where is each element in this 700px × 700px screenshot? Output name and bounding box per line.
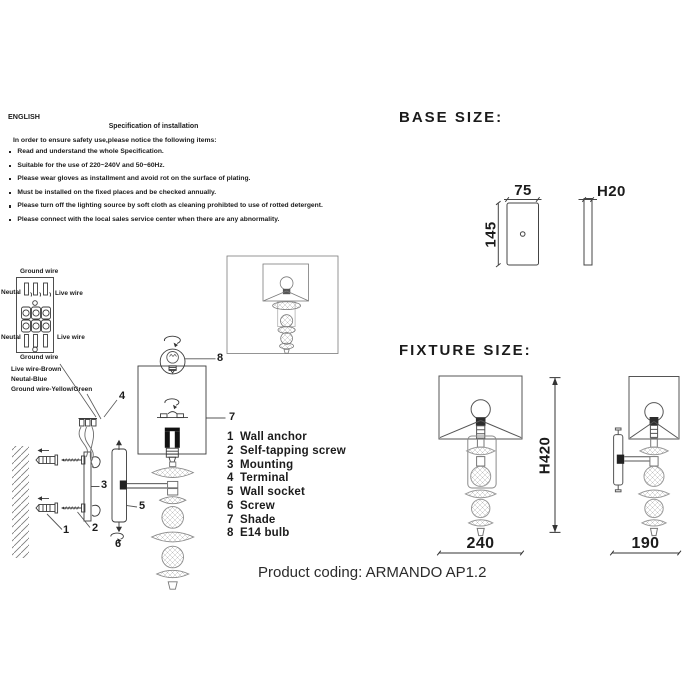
wall-anchor-top xyxy=(36,448,85,465)
part-item: 4Terminal xyxy=(227,472,346,486)
wall-hatch xyxy=(12,446,29,558)
lamp-socket xyxy=(165,428,180,462)
fixture-height-dim: H420 xyxy=(537,436,554,476)
legend-neutral: Neutal-Blue xyxy=(11,376,47,383)
part-item: 3Mounting xyxy=(227,459,346,473)
wiring-terminal-block-drawing xyxy=(17,278,54,353)
base-width-dim: 75 xyxy=(507,182,539,199)
bullet-dot xyxy=(9,192,11,194)
installation-drawing xyxy=(12,336,226,589)
inset-assembled-view xyxy=(227,256,338,354)
wires xyxy=(79,427,94,468)
part-item: 6Screw xyxy=(227,500,346,514)
fixture-side-width-dim: 190 xyxy=(618,535,673,553)
ground-wire-top-label: Ground wire xyxy=(20,268,58,275)
instruction-item: Suitable for the use of 220~240V and 50~… xyxy=(8,162,368,176)
part-item: 7Shade xyxy=(227,514,346,528)
legend-live-wire: Live wire-Brown xyxy=(11,366,61,373)
line-art-layer xyxy=(0,0,700,700)
bullet-dot xyxy=(9,205,11,207)
base-depth-dim: H20 xyxy=(597,183,626,200)
spec-intro: In order to ensure safety use,please not… xyxy=(13,137,217,144)
bullet-dot xyxy=(9,178,11,180)
bullet-dot xyxy=(9,219,11,221)
instruction-item: Please connect with the local sales serv… xyxy=(8,216,368,230)
terminal-connector xyxy=(79,419,98,427)
mounting-bracket xyxy=(84,452,100,521)
legend-ground: Ground wire-Yellow/Green xyxy=(11,386,92,393)
callout-3: 3 xyxy=(101,479,107,491)
spec-title: Specification of installation xyxy=(56,123,251,130)
instruction-item: Please turn off the lighting source by s… xyxy=(8,202,368,216)
socket-mount-piece xyxy=(157,412,188,418)
live-wire-top-label: Live wire xyxy=(55,290,83,297)
wall-socket xyxy=(112,440,167,532)
callout-7: 7 xyxy=(229,411,235,423)
leader-lines xyxy=(47,359,226,530)
fixture-side-drawing xyxy=(610,377,681,556)
rotate-arrow-icon xyxy=(165,399,179,409)
part-item: 5Wall socket xyxy=(227,486,346,500)
product-coding: Product coding: ARMANDO AP1.2 xyxy=(258,564,486,581)
instruction-item: Read and understand the whole Specificat… xyxy=(8,148,368,162)
language-label: ENGLISH xyxy=(8,112,40,121)
parts-list: 1Wall anchor 2Self-tapping screw 3Mounti… xyxy=(227,431,346,541)
live-wire-bottom-label: Live wire xyxy=(57,334,85,341)
callout-1: 1 xyxy=(63,524,69,536)
callout-6: 6 xyxy=(115,538,121,550)
instruction-list: Read and understand the whole Specificat… xyxy=(8,148,368,229)
callout-5: 5 xyxy=(139,500,145,512)
fixture-size-title: FIXTURE SIZE: xyxy=(399,342,532,359)
callout-4: 4 xyxy=(119,390,125,402)
bulb-drawing xyxy=(160,349,185,374)
bullet-dot xyxy=(9,165,11,167)
callout-8: 8 xyxy=(217,352,223,364)
ground-wire-bottom-label: Ground wire xyxy=(20,354,58,361)
instruction-item: Please wear gloves as installment and av… xyxy=(8,175,368,189)
shade-outline xyxy=(138,366,206,454)
part-item: 1Wall anchor xyxy=(227,431,346,445)
base-height-dim: 145 xyxy=(483,215,500,255)
bullet-dot xyxy=(9,151,11,153)
wall-anchor-bottom xyxy=(36,496,85,513)
part-item: 2Self-tapping screw xyxy=(227,445,346,459)
instruction-sheet: ENGLISH Specification of installation In… xyxy=(0,0,700,700)
instruction-item: Must be installed on the fixed places an… xyxy=(8,189,368,203)
neutral-top-label: Neutal xyxy=(1,289,21,296)
callout-2: 2 xyxy=(92,522,98,534)
part-item: 8E14 bulb xyxy=(227,527,346,541)
base-size-title: BASE SIZE: xyxy=(399,109,503,126)
rotate-arrow-icon xyxy=(164,336,180,347)
fixture-front-width-dim: 240 xyxy=(453,535,508,553)
crystal-stack xyxy=(152,462,194,589)
base-size-drawing xyxy=(496,197,597,267)
neutral-bottom-label: Neutal xyxy=(1,334,21,341)
